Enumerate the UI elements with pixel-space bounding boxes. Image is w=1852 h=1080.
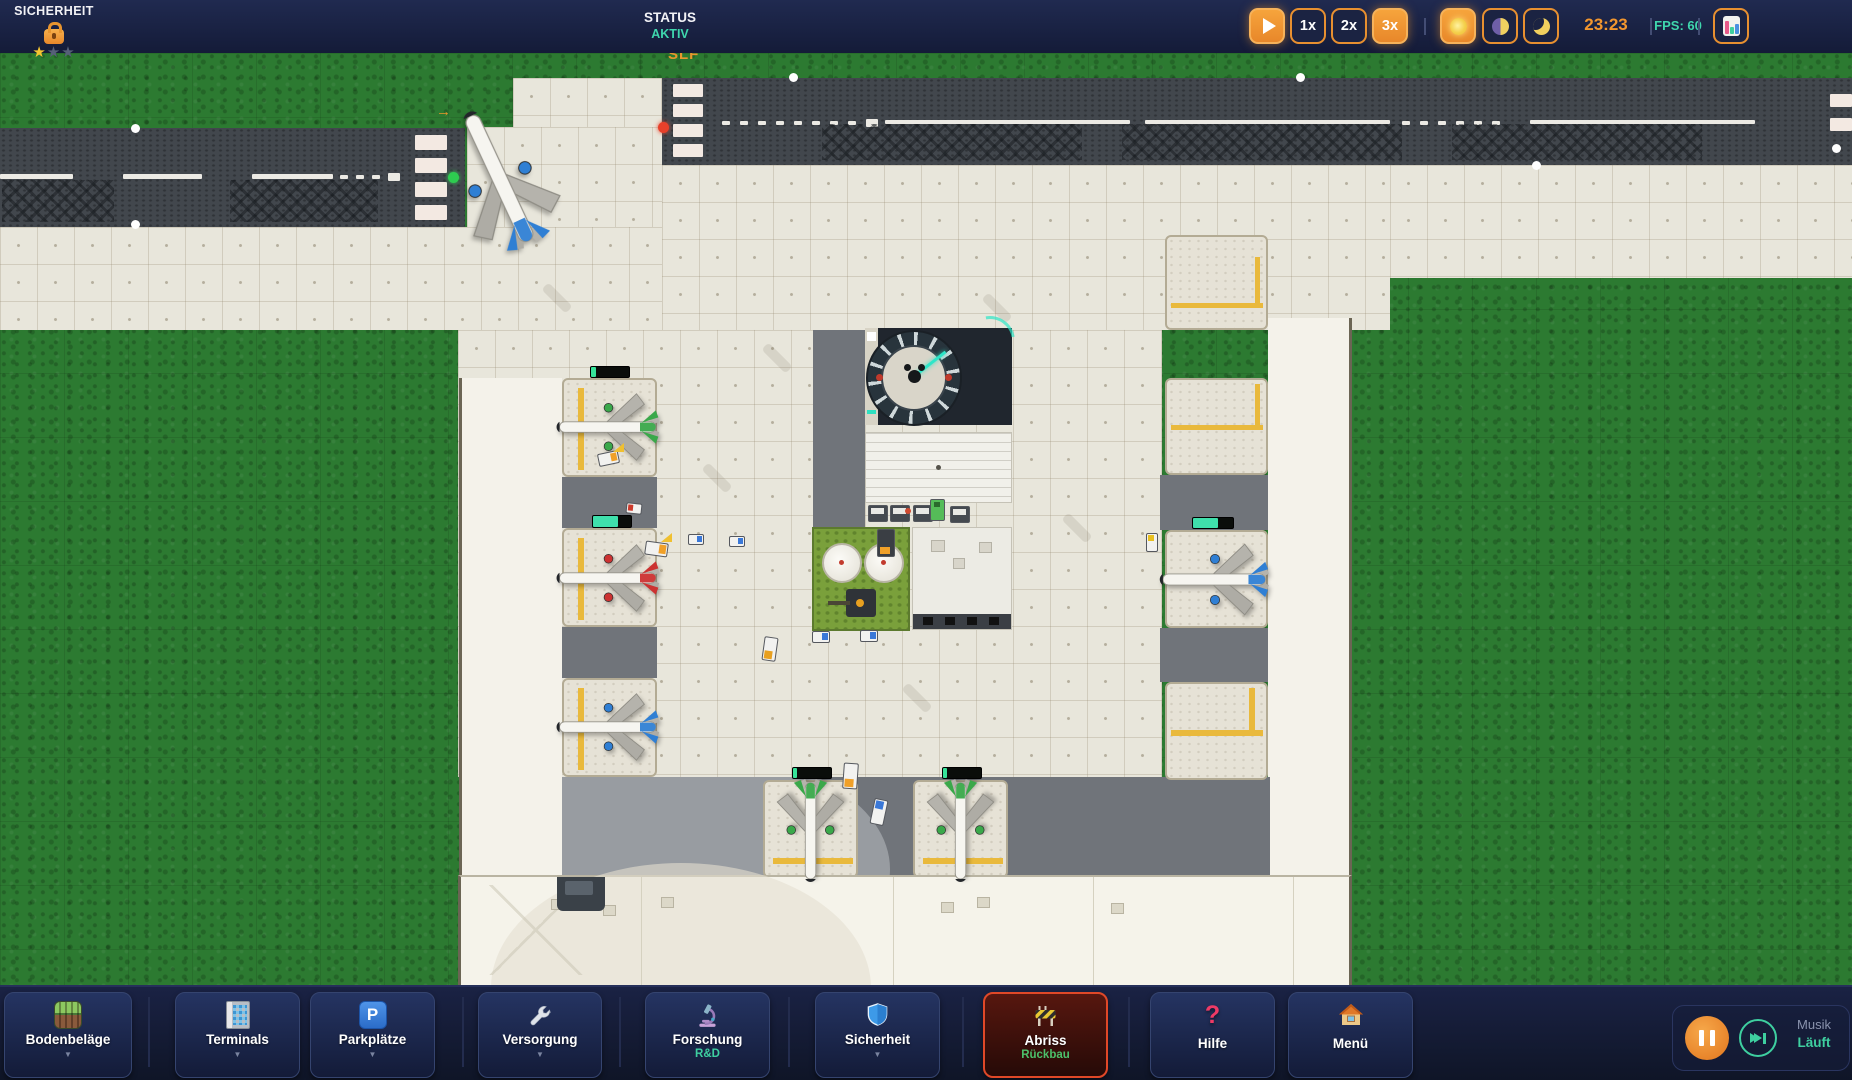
parking-icon: P <box>359 1001 387 1029</box>
chevron-down-icon: ▼ <box>64 1050 72 1059</box>
toolbar-button-parking[interactable]: P Parkplätze ▼ <box>310 992 435 1078</box>
building-icon <box>226 1001 250 1029</box>
baggage-cart[interactable] <box>950 506 970 523</box>
play-button[interactable] <box>1249 8 1285 44</box>
chevron-down-icon: ▼ <box>536 1050 544 1059</box>
aircraft-stand-empty[interactable] <box>1165 682 1268 780</box>
chevron-down-icon: ▼ <box>234 1050 242 1059</box>
taxiway-label: SLF <box>668 53 699 63</box>
statistics-button[interactable] <box>1713 8 1749 44</box>
toolbar-button-terminals[interactable]: Terminals ▼ <box>175 992 300 1078</box>
house-icon <box>1338 1002 1364 1028</box>
taxi-direction-arrow: → <box>436 103 451 120</box>
chevron-down-icon: ▼ <box>874 1050 882 1059</box>
status-label: STATUS <box>610 10 730 25</box>
play-icon <box>1263 18 1276 34</box>
time-dusk-button[interactable] <box>1482 8 1518 44</box>
airport-map[interactable]: SLF → <box>0 53 1852 985</box>
speed-3x-button[interactable]: 3x <box>1372 8 1408 44</box>
terminal-building[interactable] <box>458 875 1352 985</box>
fuel-depot[interactable] <box>812 527 910 631</box>
music-label: Musik <box>1785 1017 1843 1032</box>
fuel-truck[interactable] <box>842 763 859 790</box>
speed-2x-button[interactable]: 2x <box>1331 8 1367 44</box>
security-panel[interactable]: SICHERHEIT ★★★ <box>8 2 100 60</box>
build-toolbar: Bodenbeläge ▼ Terminals ▼ P Parkplätze ▼… <box>0 985 1852 1080</box>
runway-east[interactable] <box>662 78 1852 165</box>
radar-building[interactable] <box>865 328 1012 425</box>
time-day-button[interactable] <box>1440 8 1476 44</box>
turnaround-progress <box>590 366 630 378</box>
security-checkpoint[interactable] <box>557 877 605 911</box>
music-status: Läuft <box>1785 1035 1843 1050</box>
service-cart[interactable] <box>812 631 830 643</box>
runway-west[interactable] <box>0 128 465 227</box>
barrier-icon <box>1032 1003 1059 1029</box>
bar-chart-icon <box>1723 16 1740 36</box>
pushback-tug[interactable] <box>644 540 669 557</box>
toolbar-button-flooring[interactable]: Bodenbeläge ▼ <box>4 992 132 1078</box>
pause-icon <box>1699 1030 1704 1046</box>
flooring-icon <box>54 1001 82 1029</box>
toolbar-button-research[interactable]: Forschung R&D <box>645 992 770 1078</box>
toolbar-button-security[interactable]: Sicherheit ▼ <box>815 992 940 1078</box>
game-clock: 23:23 <box>1566 15 1646 35</box>
ground-vehicle[interactable] <box>625 502 642 515</box>
runway-edge-light <box>131 124 140 133</box>
lock-icon <box>44 29 64 44</box>
ground-vehicle[interactable] <box>1146 533 1158 552</box>
turnaround-progress <box>592 515 632 528</box>
status-value: AKTIV <box>610 27 730 41</box>
security-title: SICHERHEIT <box>14 4 94 18</box>
taxiway-apron[interactable] <box>0 227 662 330</box>
security-star-rating: ★★★ <box>8 46 100 60</box>
airplane-at-gate[interactable] <box>767 778 855 883</box>
fuel-tank <box>822 543 862 583</box>
runway-skidmarks <box>2 180 114 222</box>
toolbar-button-demolish[interactable]: Abriss Rückbau <box>983 992 1108 1078</box>
baggage-cart[interactable] <box>868 505 888 522</box>
speed-1x-button[interactable]: 1x <box>1290 8 1326 44</box>
music-pause-button[interactable] <box>1685 1016 1729 1060</box>
question-icon: ? <box>1205 1001 1220 1030</box>
status-panel: STATUS AKTIV <box>610 10 730 41</box>
toolbar-button-menu[interactable]: Menü <box>1288 992 1413 1078</box>
service-building[interactable] <box>912 527 1012 630</box>
fuel-truck[interactable] <box>877 529 895 557</box>
time-night-button[interactable] <box>1523 8 1559 44</box>
airplane-at-gate[interactable] <box>556 683 661 771</box>
turnaround-progress <box>1192 517 1234 529</box>
service-cart[interactable] <box>688 534 704 545</box>
taxiway-apron[interactable] <box>662 165 1390 330</box>
cargo-warehouse[interactable] <box>865 432 1012 503</box>
microscope-icon <box>695 1002 721 1028</box>
music-player: Musik Läuft <box>1672 1005 1850 1071</box>
aircraft-stand-empty[interactable] <box>1165 235 1268 330</box>
wrench-icon <box>527 1002 553 1028</box>
service-cart[interactable] <box>729 536 745 547</box>
music-skip-button[interactable] <box>1739 1019 1777 1057</box>
game-window: SLF → SICHERHEIT ★★★ STATUS AKTIV 1x 2x … <box>0 0 1852 1080</box>
taxiway-apron[interactable] <box>1390 165 1852 278</box>
shield-icon <box>865 1002 890 1028</box>
pause-icon <box>1710 1030 1715 1046</box>
aircraft-stand-empty[interactable] <box>1165 378 1268 475</box>
toolbar-button-utilities[interactable]: Versorgung ▼ <box>478 992 602 1078</box>
half-moon-icon <box>1492 18 1509 35</box>
airplane-at-gate[interactable] <box>917 778 1005 883</box>
radar-dish <box>866 330 962 426</box>
top-hud-bar: SICHERHEIT ★★★ STATUS AKTIV 1x 2x 3x 23:… <box>0 0 1852 53</box>
runway-status-light-red <box>658 122 669 133</box>
moon-icon <box>1533 18 1550 35</box>
toolbar-button-help[interactable]: ? Hilfe <box>1150 992 1275 1078</box>
terminal-pier-west[interactable] <box>459 378 562 875</box>
service-vehicle[interactable] <box>930 499 945 521</box>
service-cart[interactable] <box>860 630 878 642</box>
fps-counter: FPS: 60 <box>1638 18 1718 33</box>
sun-icon <box>1450 18 1467 35</box>
terminal-pier-east[interactable] <box>1268 318 1352 875</box>
airplane-at-gate[interactable] <box>1159 533 1271 626</box>
chevron-down-icon: ▼ <box>369 1050 377 1059</box>
